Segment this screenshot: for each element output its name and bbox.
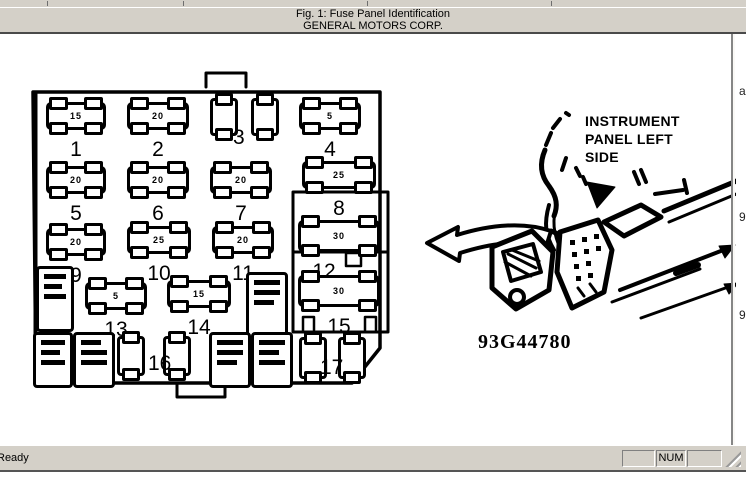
fuse-3-element-b <box>251 98 279 136</box>
fuse-cap <box>168 331 186 344</box>
fuse-cap <box>49 161 68 174</box>
fuse-cap <box>213 186 232 199</box>
fuse-cap <box>170 275 189 288</box>
fuse-cap <box>343 371 361 384</box>
clipped-edge-text: a 9 9 <box>736 34 746 445</box>
fuse-cap <box>130 246 149 259</box>
fuse-8-amp: 25 <box>333 170 345 180</box>
relay-block-4 <box>251 332 293 388</box>
fuse-4: 5 4 <box>299 102 361 162</box>
fuse-16-number: 16 <box>148 352 171 376</box>
fuse-cap <box>215 246 234 259</box>
fuse-2-number: 2 <box>127 138 189 162</box>
fuse-cap <box>209 275 228 288</box>
fuse-12-amp: 30 <box>333 231 345 241</box>
figure-header: Fig. 1: Fuse Panel Identification GENERA… <box>0 8 746 32</box>
fuse-11-body: 20 <box>212 226 274 254</box>
fuse-cap <box>358 270 377 283</box>
fuse-cap <box>49 122 68 135</box>
relay-block-1 <box>33 332 73 388</box>
fuse-cap <box>130 122 149 135</box>
fuse-cap <box>49 223 68 236</box>
fuse-cap <box>122 368 140 381</box>
edge-fragment: 9 <box>739 210 746 224</box>
fuse-8: 25 8 <box>302 161 376 221</box>
fuse-6: 20 6 <box>127 166 189 226</box>
fuse-cap <box>301 299 320 312</box>
fuse-cap <box>358 244 377 257</box>
fuse-cap <box>354 156 373 169</box>
mini-fuse-1 <box>117 336 145 376</box>
fuse-1-number: 1 <box>46 138 106 162</box>
fuse-17-number: 17 <box>320 356 343 380</box>
fuse-cap <box>169 221 188 234</box>
fuse-9-body: 20 <box>46 228 106 256</box>
fuse-5: 20 5 <box>46 166 106 226</box>
fuse-cap <box>125 302 144 315</box>
fuse-cap <box>250 161 269 174</box>
fuse-cap <box>167 97 186 110</box>
fuse-cap <box>256 93 274 106</box>
fuse-cap <box>358 215 377 228</box>
fuse-cap <box>125 277 144 290</box>
fuse-cap <box>130 97 149 110</box>
connector-grid <box>557 220 612 308</box>
toolbar-separator <box>551 1 552 6</box>
edge-fragment: a <box>739 84 746 98</box>
toolbar-strip <box>0 0 746 8</box>
fuse-cap <box>84 122 103 135</box>
fuse-cap <box>84 248 103 261</box>
fuse-5-body: 20 <box>46 166 106 194</box>
fuse-cap <box>302 122 321 135</box>
status-pane-num: NUM <box>656 450 686 467</box>
resize-grip-icon[interactable] <box>724 451 741 467</box>
fuse-14-amp: 15 <box>193 289 205 299</box>
relay-block-2 <box>73 332 115 388</box>
fuse-11-amp: 20 <box>237 235 249 245</box>
fuse-7-amp: 20 <box>235 175 247 185</box>
fuse-10-body: 25 <box>127 226 191 254</box>
fuse-14-body: 15 <box>167 280 231 308</box>
fuse-cap <box>49 248 68 261</box>
window-bottom-edge <box>0 470 746 472</box>
edge-fragment: 9 <box>739 308 746 322</box>
fuse-cap <box>130 186 149 199</box>
fuse-cap <box>84 161 103 174</box>
fuse-cap <box>215 221 234 234</box>
fuse-cap <box>305 181 324 194</box>
fuse-cap <box>209 300 228 313</box>
fuse-9-amp: 20 <box>70 237 82 247</box>
fuse-cap <box>256 128 274 141</box>
fuse-cap <box>213 161 232 174</box>
fuse-cap <box>343 332 361 345</box>
fuse-cap <box>167 122 186 135</box>
fuse-12-body: 30 <box>298 220 380 252</box>
fuse-2-body: 20 <box>127 102 189 130</box>
fuse-cap <box>358 299 377 312</box>
status-pane-1 <box>622 450 655 467</box>
status-bar: Ready NUM <box>0 445 746 471</box>
panel-slot <box>604 205 661 236</box>
fuse-4-amp: 5 <box>327 111 333 121</box>
fuse-cap <box>130 221 149 234</box>
fuse-13-body: 5 <box>85 282 147 310</box>
fuse-cap <box>215 93 233 106</box>
fuse-cap <box>252 246 271 259</box>
fuse-cap <box>215 128 233 141</box>
fuse-cap <box>339 97 358 110</box>
fuse-cap <box>170 300 189 313</box>
fuse-cap <box>167 161 186 174</box>
fuse-cap <box>339 122 358 135</box>
instrument-panel-callout: INSTRUMENT PANEL LEFT SIDE <box>585 112 715 166</box>
fuse-cap <box>84 223 103 236</box>
fuse-cap <box>88 277 107 290</box>
fuse-1: 15 1 <box>46 102 106 162</box>
direction-arrows <box>612 245 738 318</box>
fuse-cap <box>304 332 322 345</box>
toolbar-separator <box>183 1 184 6</box>
fuse-cap <box>169 246 188 259</box>
fuse-6-amp: 20 <box>152 175 164 185</box>
fuse-15: 30 15 <box>298 275 380 339</box>
fuse-cap <box>88 302 107 315</box>
fuse-cap <box>130 161 149 174</box>
fuse-15-amp: 30 <box>333 286 345 296</box>
fuse-cap <box>84 97 103 110</box>
fuse-cap <box>84 186 103 199</box>
fuse-cap <box>122 331 140 344</box>
callout-line: INSTRUMENT <box>585 112 715 130</box>
fuse-cap <box>301 270 320 283</box>
fuse-cap <box>49 97 68 110</box>
fuse-cap <box>167 186 186 199</box>
fuse-1-body: 15 <box>46 102 106 130</box>
toolbar-separator <box>47 1 48 6</box>
pointer-triangle-icon <box>587 182 615 208</box>
callout-line: SIDE <box>585 148 715 166</box>
header-divider <box>0 32 746 34</box>
connector-hatched <box>492 231 553 309</box>
figure-title: Fig. 1: Fuse Panel Identification <box>0 8 746 20</box>
figure-subtitle: GENERAL MOTORS CORP. <box>0 20 746 32</box>
callout-line: PANEL LEFT <box>585 130 715 148</box>
status-message: Ready <box>0 452 29 464</box>
fuse-13-amp: 5 <box>113 291 119 301</box>
fuse-cap <box>302 97 321 110</box>
fuse-10-amp: 25 <box>153 235 165 245</box>
status-pane-2 <box>687 450 722 467</box>
content-right-border-highlight <box>733 34 735 445</box>
fuse-cap <box>301 244 320 257</box>
fuse-7: 20 7 <box>210 166 272 226</box>
fuse-7-body: 20 <box>210 166 272 194</box>
fuse-cap <box>354 181 373 194</box>
fuse-cap <box>305 156 324 169</box>
fuse-8-body: 25 <box>302 161 376 189</box>
fuse-cap <box>301 215 320 228</box>
relay-block-3 <box>209 332 251 388</box>
toolbar-separator <box>367 1 368 6</box>
fuse-15-body: 30 <box>298 275 380 307</box>
fuse-2: 20 2 <box>127 102 189 162</box>
fuse-4-body: 5 <box>299 102 361 130</box>
fuse-2-amp: 20 <box>152 111 164 121</box>
fuse-cap <box>49 186 68 199</box>
part-number: 93G44780 <box>478 331 572 354</box>
fuse-cap <box>252 221 271 234</box>
relay-a <box>36 266 74 332</box>
fuse-1-amp: 15 <box>70 111 82 121</box>
fuse-3-number: 3 <box>233 126 245 150</box>
fuse-6-body: 20 <box>127 166 189 194</box>
fuse-cap <box>250 186 269 199</box>
fuse-5-amp: 20 <box>70 175 82 185</box>
